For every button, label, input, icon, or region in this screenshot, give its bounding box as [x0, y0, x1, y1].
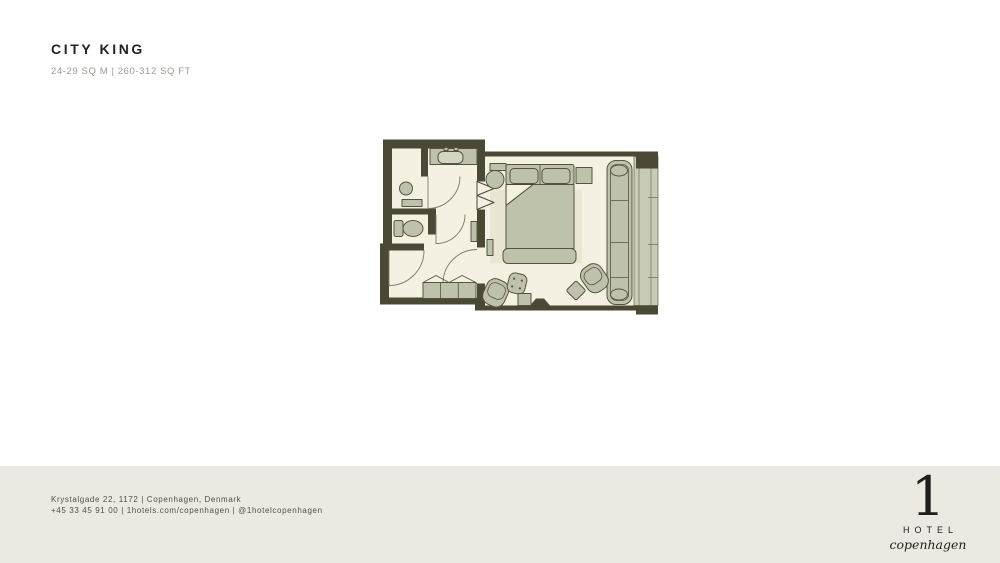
coffee-table — [518, 294, 531, 306]
room-header: CITY KING 24-29 SQ M | 260-312 SQ FT — [51, 41, 191, 77]
faucet-icon — [444, 148, 448, 151]
sofa-arm — [611, 289, 628, 300]
footer: Krystalgade 22, 1172 | Copenhagen, Denma… — [0, 466, 1000, 563]
footer-address: Krystalgade 22, 1172 | Copenhagen, Denma… — [51, 495, 323, 506]
wall-hall-middle — [477, 210, 485, 248]
logo-city-text: copenhagen — [880, 537, 976, 552]
hall-shelf — [471, 222, 477, 242]
console — [490, 164, 506, 171]
wall-wc-bottom — [380, 244, 424, 251]
floor-plan — [380, 137, 660, 324]
wall-wc-side — [428, 209, 436, 235]
wall-pier-top-right — [636, 152, 658, 169]
sofa-arm — [611, 165, 628, 176]
wall-top-bedroom — [483, 152, 636, 157]
pillow — [510, 169, 538, 184]
room-title: CITY KING — [51, 41, 191, 57]
wall-pier-bottom-right — [636, 306, 658, 315]
wall-top-left — [383, 140, 485, 149]
bed-bench — [503, 249, 576, 264]
nightstand — [486, 171, 504, 189]
logo-hotel-text: HOTEL — [880, 525, 976, 535]
toilet-tank — [394, 221, 403, 237]
toilet-icon — [403, 221, 423, 237]
hotel-logo: 1 HOTEL copenhagen — [880, 471, 976, 552]
bedroom-shelf — [487, 240, 493, 256]
wall-left-upper — [383, 140, 392, 248]
footer-address-block: Krystalgade 22, 1172 | Copenhagen, Denma… — [51, 495, 323, 516]
wall-wc-top — [392, 209, 428, 215]
wall-hall-upper — [477, 140, 485, 182]
window-glazing — [634, 157, 658, 306]
wall-left-lower — [380, 246, 389, 305]
floor-plan-drawing — [380, 137, 660, 324]
logo-numeral: 1 — [880, 471, 976, 523]
footer-contact: +45 33 45 91 00 | 1hotels.com/copenhagen… — [51, 506, 323, 517]
side-table — [576, 168, 592, 184]
window-wall — [634, 157, 658, 306]
wall-bench — [402, 200, 422, 207]
pillow — [542, 169, 570, 184]
sink-icon — [438, 152, 463, 164]
stool — [400, 182, 413, 195]
closet — [423, 283, 476, 299]
faucet-icon — [454, 148, 458, 151]
room-size: 24-29 SQ M | 260-312 SQ FT — [51, 66, 191, 77]
wall-bathroom-divider — [421, 149, 428, 177]
